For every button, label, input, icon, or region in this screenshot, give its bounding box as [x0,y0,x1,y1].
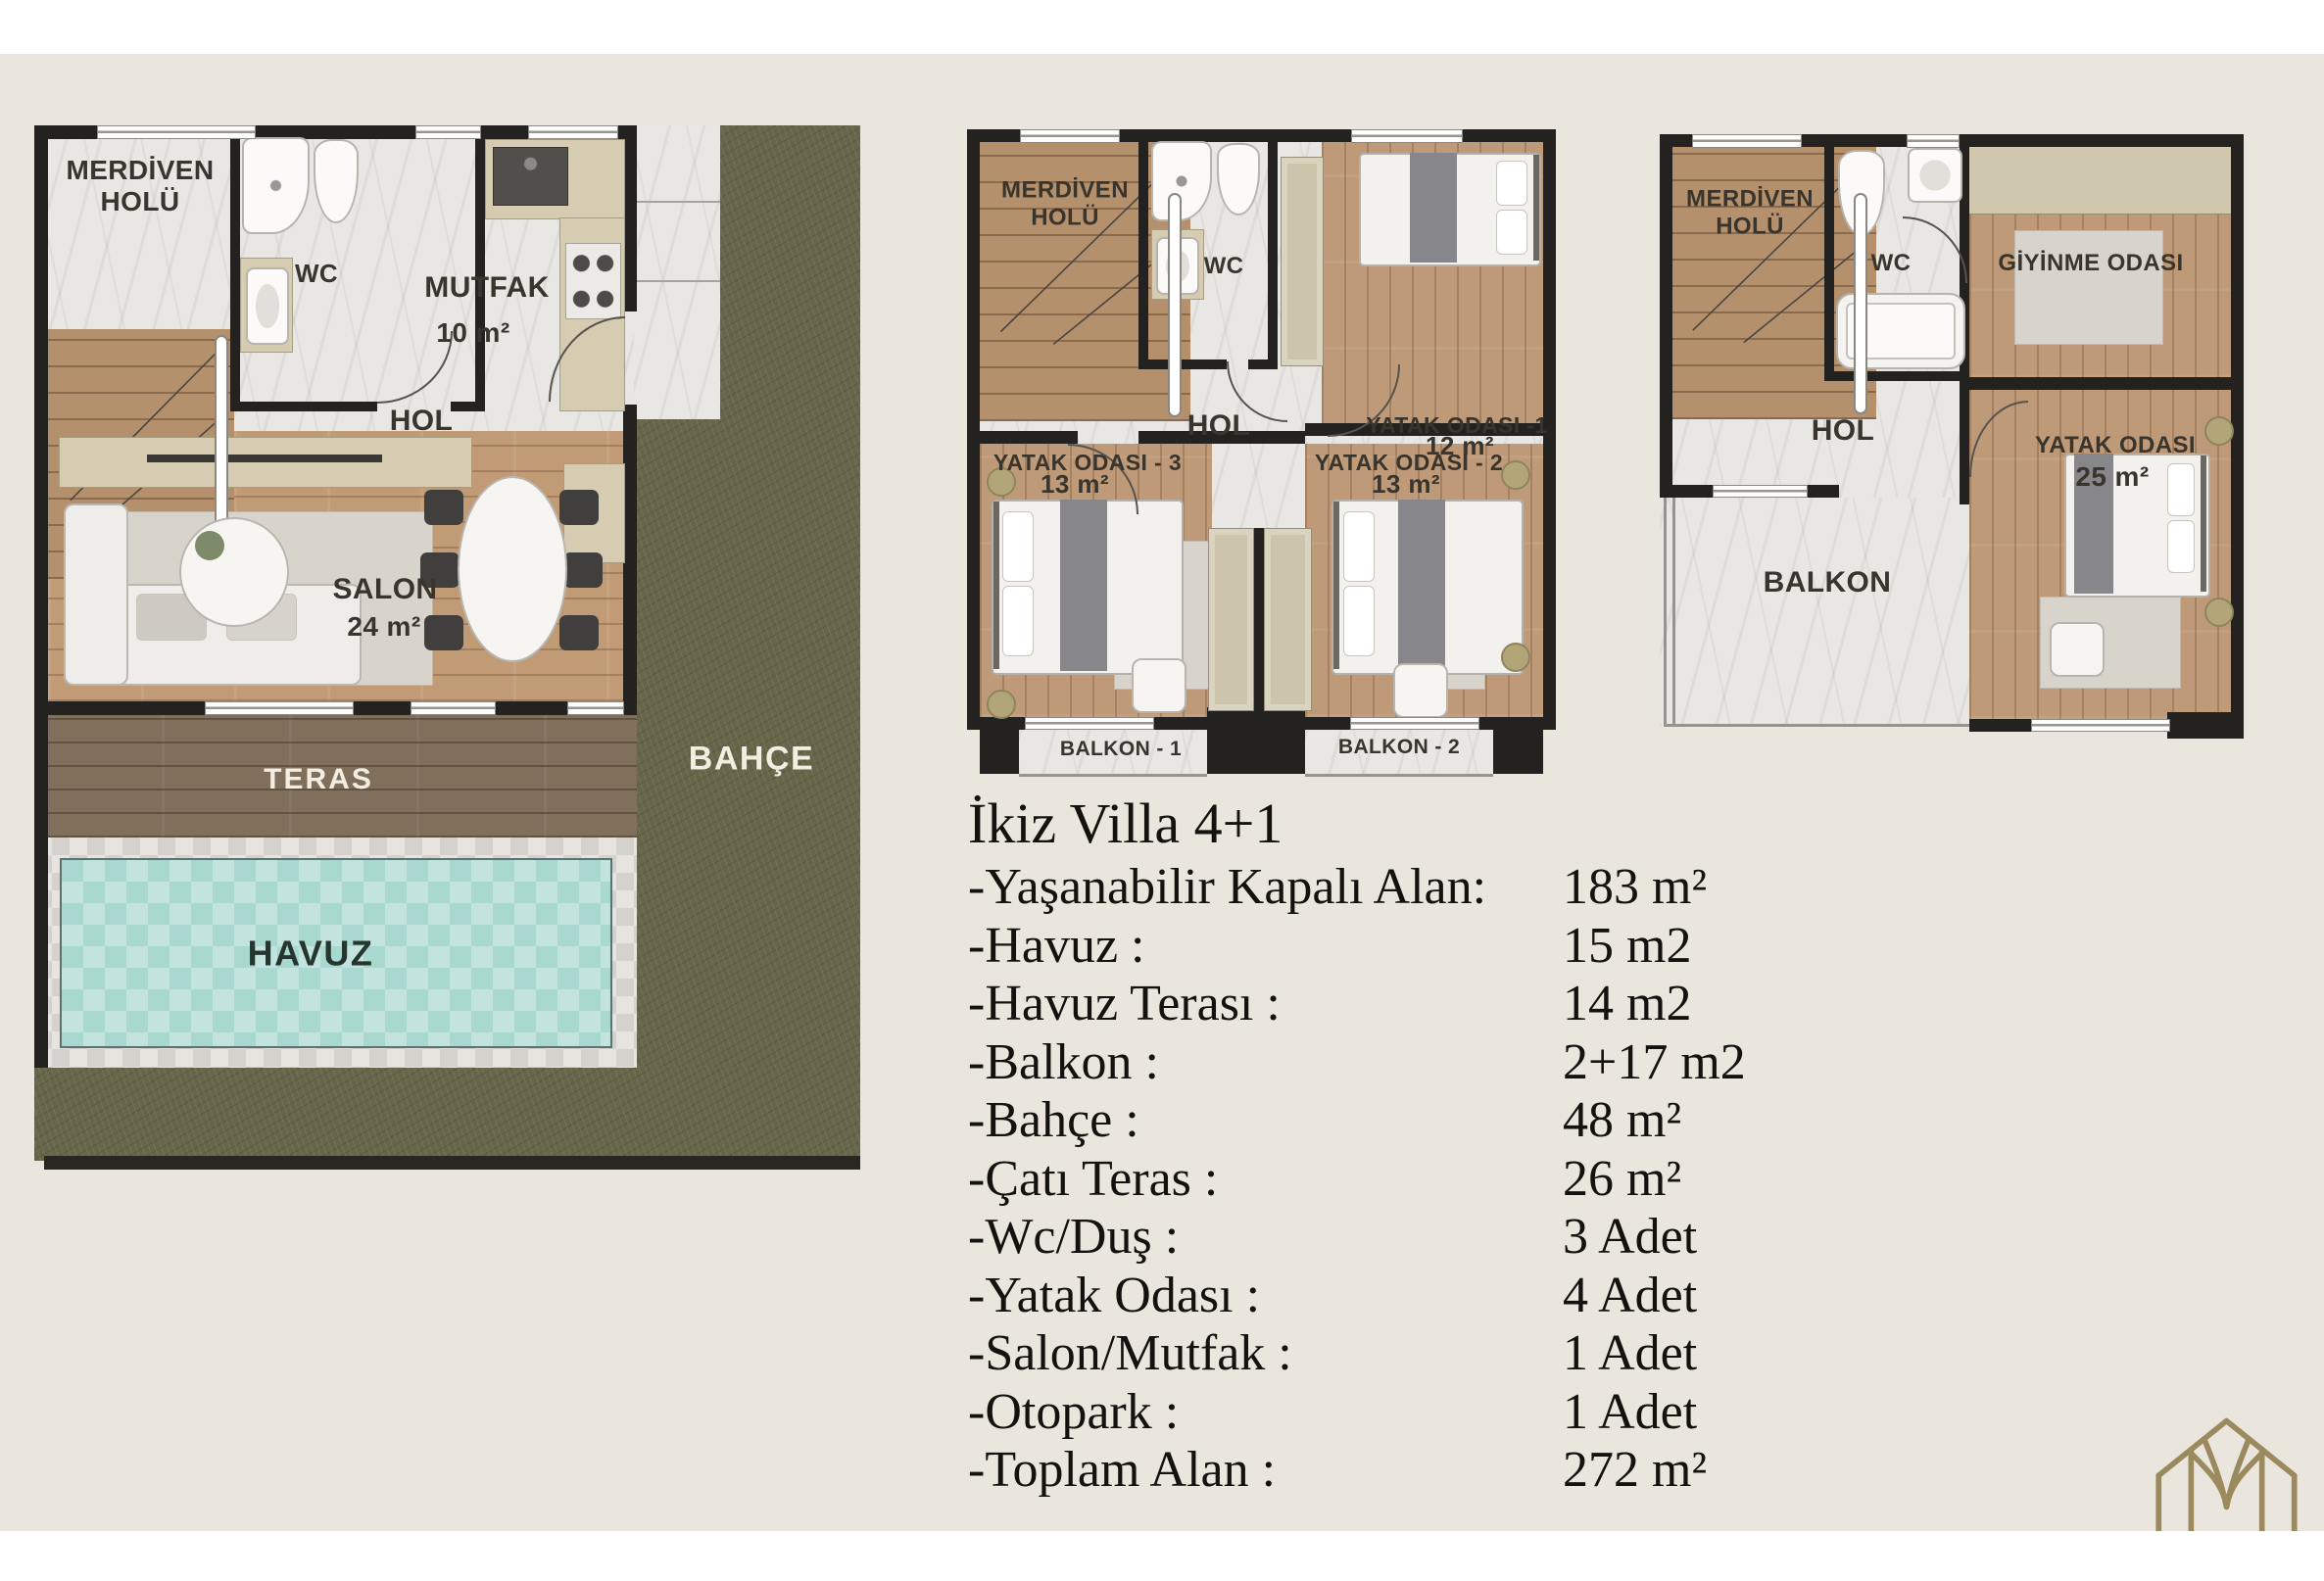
label-balcony: BALKON [1764,566,1892,600]
closet [1264,528,1312,711]
window [1352,130,1462,142]
room-label-hall: HOL [390,405,454,439]
spec-label: -Bahçe : [968,1091,1139,1150]
wall [230,402,377,411]
kitchen-sink [493,147,568,206]
window [1021,130,1119,142]
stove [565,243,621,319]
label-balcony1: BALKON - 1 [1060,738,1182,761]
wall [1493,717,1543,774]
spec-value: 272 m² [1563,1441,1707,1500]
spec-value: 48 m² [1563,1091,1681,1150]
bed-pillow [1002,586,1034,656]
coffee-table [179,517,289,627]
spec-value: 26 m² [1563,1150,1681,1209]
nightstand [2204,416,2234,446]
spec-value: 4 Adet [1563,1267,1697,1325]
wall [1960,377,2244,390]
spec-row: -Yaşanabilir Kapalı Alan: 183 m² [0,858,2324,917]
spec-row: -Otopark : 1 Adet [0,1383,2324,1442]
spec-label: -Çatı Teras : [968,1150,1218,1209]
window [2032,720,2169,731]
label-balcony2: BALKON - 2 [1338,736,1460,759]
window [1714,486,1807,497]
window [568,702,623,714]
dining-table [458,476,567,662]
spec-row: -Havuz : 15 m2 [0,917,2324,976]
wall [1960,377,1969,504]
balcony-rail [1672,498,1675,727]
wall [623,405,637,715]
area-label-bedroom3: 13 m² [1041,470,1109,500]
spec-row: -Havuz Terası : 14 m2 [0,975,2324,1033]
wall [1138,359,1227,369]
wall [1268,129,1278,369]
sofa-corner [64,503,128,686]
window [529,126,617,138]
wall [1660,134,1672,498]
spec-row: -Yatak Odası : 4 Adet [0,1267,2324,1325]
dressing-room-cabinet [1969,147,2231,215]
spec-label: -Havuz : [968,917,1144,976]
window [1026,718,1153,729]
wall [623,125,637,311]
room-label-stair-hall: MERDİVEN HOLÜ [50,155,231,217]
spec-label: -Otopark : [968,1383,1179,1442]
closet [1208,528,1254,711]
wall [2167,712,2244,739]
walkway-seam [634,201,720,203]
nightstand [1501,460,1530,490]
bed-pillow [1002,511,1034,582]
armchair [2050,622,2105,677]
wall [967,129,980,730]
nightstand [1501,643,1530,672]
stair-rail [1854,193,1867,414]
window [98,126,255,138]
area-label-kitchen: 10 m² [436,317,509,349]
window [416,126,480,138]
room-label-hall: HOL [1812,414,1875,449]
top-paper-strip [0,0,2324,54]
spec-value: 1 Adet [1563,1383,1697,1442]
room-label-dressing: GİYİNME ODASI [1998,250,2183,277]
spec-value: 2+17 m2 [1563,1033,1746,1092]
spec-row: -Wc/Duş : 3 Adet [0,1208,2324,1267]
room-label-bedroom: YATAK ODASI [2035,432,2196,459]
wardrobe [1281,157,1324,366]
window [1351,718,1478,729]
window [206,702,353,714]
plant [195,531,224,560]
bed-blanket [1398,500,1445,671]
spec-label: -Toplam Alan : [968,1441,1276,1500]
window [1693,135,1801,147]
wall [1138,129,1148,369]
spec-label: -Balkon : [968,1033,1159,1092]
spec-row: -Toplam Alan : 272 m² [0,1441,2324,1500]
room-label-wc: WC [295,260,338,289]
room-label-wc: WC [1871,250,1912,277]
bed-headboard [2201,455,2206,592]
window [412,702,495,714]
tv-console [59,437,472,488]
spec-label: -Salon/Mutfak : [968,1324,1292,1383]
spec-value: 15 m2 [1563,917,1691,976]
spec-row: -Salon/Mutfak : 1 Adet [0,1324,2324,1383]
walkway-seam [634,280,720,282]
spec-row: -Balkon : 2+17 m2 [0,1033,2324,1092]
stair-rail [1168,193,1182,417]
wall [1824,134,1834,381]
bed-headboard [993,502,999,669]
spec-value: 1 Adet [1563,1324,1697,1383]
dressing-room-rug [2014,230,2163,345]
wall [1207,707,1305,774]
bed-pillow [2167,520,2195,573]
spec-label: -Yaşanabilir Kapalı Alan: [968,858,1486,917]
spec-label: -Wc/Duş : [968,1208,1179,1267]
tv [147,455,382,462]
bottom-paper-strip [0,1531,2324,1581]
bed-pillow [1496,161,1527,206]
armchair [1132,658,1186,713]
spec-title: İkiz Villa 4+1 [968,791,1283,856]
floorplan-sheet: WC MERDİVEN HOLÜ MUTFAK 10 m² HOL [0,0,2324,1581]
area-label-bedroom: 25 m² [2075,461,2149,493]
room-label-kitchen: MUTFAK [424,271,549,306]
spec-row: -Bahçe : 48 m² [0,1091,2324,1150]
entry-walkway [634,125,720,419]
room-label-wc: WC [1204,253,1244,280]
bed-pillow [2167,463,2195,516]
label-terrace: TERAS [264,763,373,797]
bed-headboard [1533,155,1539,261]
spec-row: -Çatı Teras : 26 m² [0,1150,2324,1209]
wall [1824,371,1969,381]
dining-chair [424,615,463,650]
bed-pillow [1496,210,1527,255]
wall [980,431,1078,444]
wall [980,717,1019,774]
bed-blanket [1060,500,1107,671]
nightstand [2204,598,2234,627]
bed-headboard [1333,502,1339,669]
balcony-rail [1664,498,1667,727]
washbasin [246,267,289,345]
spec-value: 14 m2 [1563,975,1691,1033]
armchair [1393,663,1448,718]
nightstand [987,690,1016,719]
room-label-stair-hall: MERDİVEN HOLÜ [1676,185,1823,239]
dining-chair [424,490,463,525]
spec-label: -Havuz Terası : [968,975,1281,1033]
washbasin [1908,148,1962,203]
area-label-living: 24 m² [347,611,420,643]
bed-pillow [1343,511,1375,582]
spec-label: -Yatak Odası : [968,1267,1260,1325]
wall [230,125,240,411]
dining-chair [559,615,599,650]
balcony-rail [1664,724,1969,727]
bed-blanket [1410,153,1457,263]
roof-floor-plan: MERDİVEN HOLÜ WC GİYİNME ODASI HOL BALKO… [1660,134,2244,744]
window [1908,135,1959,147]
room-label-stair-hall: MERDİVEN HOLÜ [992,176,1138,230]
spec-value: 183 m² [1563,858,1707,917]
room-label-living: SALON [333,573,438,607]
wall [451,402,485,411]
balcony-floor [1672,498,1969,727]
spec-value: 3 Adet [1563,1208,1697,1267]
label-garden: BAHÇE [689,740,814,778]
room-label-hall: HOL [1187,409,1251,444]
wall [475,125,485,411]
area-label-bedroom2: 13 m² [1372,470,1440,500]
bed-pillow [1343,586,1375,656]
dining-chair [559,490,599,525]
dining-chair [563,552,603,588]
first-floor-plan: MERDİVEN HOLÜ WC YATAK ODASI -1 12 m² HO… [967,129,1568,779]
